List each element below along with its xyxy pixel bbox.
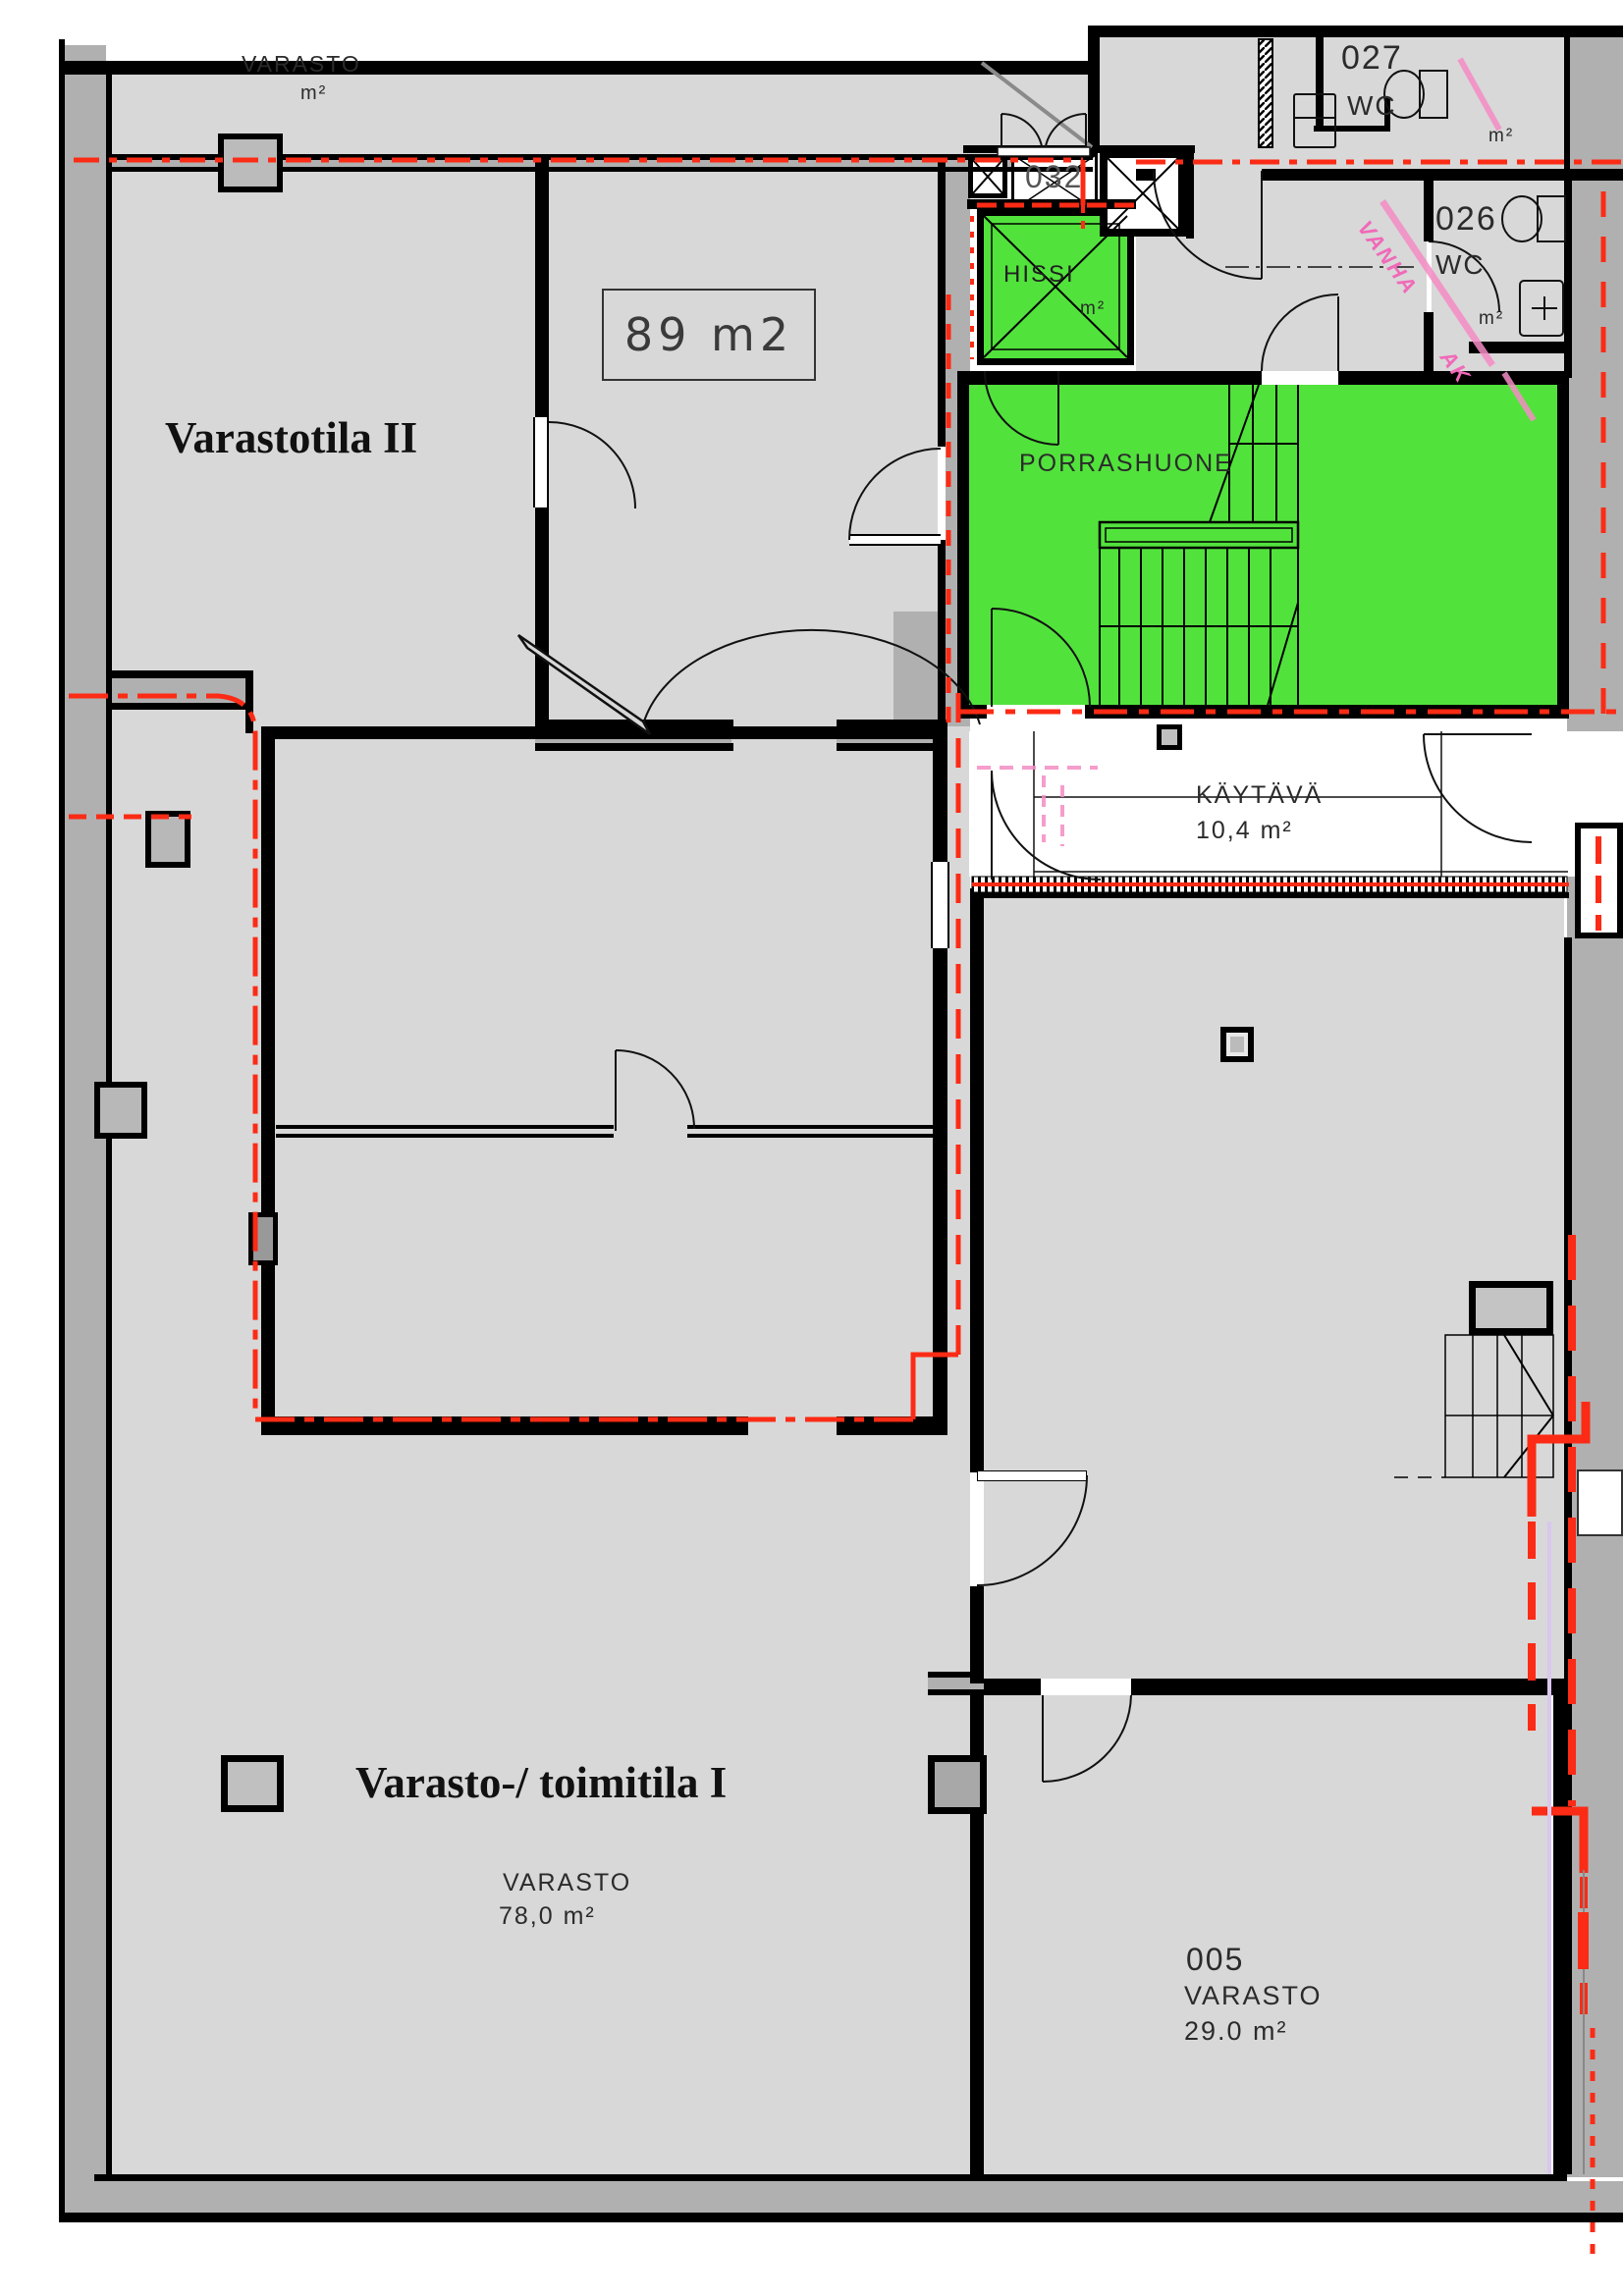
- wall: [1553, 1695, 1564, 2174]
- floor-plan-page: { "rooms": { "varasto_upper": {"name": "…: [0, 0, 1623, 2296]
- wall: [1314, 126, 1390, 132]
- wall: [957, 378, 969, 712]
- wall: [1186, 150, 1194, 239]
- wc-026-type: WC: [1435, 249, 1486, 281]
- wall: [1564, 37, 1570, 182]
- wall: [276, 1125, 614, 1129]
- wall: [276, 1134, 614, 1138]
- wc-026-number: 026: [1435, 200, 1497, 239]
- wall: [106, 703, 253, 710]
- wall: [970, 892, 1569, 898]
- varasto-78-label: VARASTO: [503, 1869, 631, 1897]
- wall: [1136, 169, 1156, 181]
- room-005-label: VARASTO: [1184, 1981, 1323, 2011]
- shaft-elevator: [1100, 150, 1186, 237]
- wall: [535, 154, 549, 417]
- room-89-label-box: 89 m2: [602, 289, 816, 381]
- column: [1157, 724, 1182, 750]
- note-box: [1577, 1469, 1623, 1536]
- door-leaf: [533, 417, 549, 507]
- varasto-toimitila-floor: [112, 710, 970, 2174]
- wall: [535, 507, 549, 726]
- door-gap: [1262, 371, 1338, 385]
- wall: [1469, 342, 1567, 353]
- wall: [261, 726, 275, 1420]
- wall: [1088, 75, 1100, 149]
- wall: [245, 670, 253, 733]
- wall: [970, 888, 984, 1472]
- wall: [938, 154, 946, 447]
- wall: [59, 2213, 1623, 2222]
- wall: [984, 1679, 1041, 1695]
- room-89-label: 89 m2: [624, 308, 793, 361]
- wall: [687, 1125, 935, 1129]
- wall: [837, 720, 947, 726]
- door-leaf: [977, 1470, 1087, 1481]
- wall: [1131, 1679, 1566, 1695]
- wall: [1088, 26, 1100, 75]
- wall: [261, 1416, 947, 1435]
- wall: [1557, 378, 1569, 719]
- wall: [94, 2174, 1567, 2181]
- wall: [1424, 312, 1434, 371]
- wall: [1316, 37, 1324, 128]
- wall: [933, 948, 947, 1420]
- varasto-toimitila-title: Varasto-/ toimitila I: [355, 1757, 727, 1808]
- shaft-duct: [1575, 823, 1623, 938]
- wall: [1424, 181, 1434, 241]
- wall: [535, 720, 733, 726]
- wall: [1564, 937, 1572, 2174]
- wall: [928, 1689, 984, 1695]
- kaytava-label: KÄYTÄVÄ: [1196, 781, 1323, 810]
- column: [248, 1212, 278, 1265]
- wall: [938, 540, 946, 726]
- room-005-number: 005: [1186, 1942, 1244, 1978]
- column: [145, 811, 190, 868]
- upper-varasto-area: m²: [300, 82, 327, 105]
- wall: [970, 1586, 984, 1683]
- shaft-small: [968, 155, 1007, 198]
- room-89-floor: [549, 154, 938, 720]
- porrashuone-label: PORRASHUONE: [1019, 450, 1233, 478]
- column: [94, 1082, 147, 1139]
- fire-glazing-strip: [972, 877, 1567, 892]
- wall-stub-fill: [106, 678, 251, 703]
- wall: [687, 1134, 935, 1138]
- door-gap: [970, 1472, 984, 1586]
- varastotila-2-title: Varastotila II: [165, 412, 417, 463]
- wc-027-type: WC: [1347, 90, 1397, 122]
- column: [218, 133, 283, 192]
- column: [928, 1755, 987, 1814]
- room-005-floor: [984, 1695, 1551, 2174]
- wall-band-bottom: [65, 2181, 1623, 2213]
- room-005-area: 29.0 m²: [1184, 2016, 1288, 2047]
- upper-varasto-label: VARASTO: [242, 51, 361, 78]
- hissi-label: HISSI: [1003, 261, 1075, 289]
- door-gap: [931, 862, 949, 948]
- porrashuone-room: [969, 383, 1565, 707]
- door-leaf: [849, 534, 941, 546]
- wall: [928, 1672, 984, 1678]
- wc-027-number: 027: [1341, 39, 1403, 78]
- wall: [106, 670, 253, 678]
- varasto-78-area: 78,0 m²: [499, 1902, 596, 1931]
- wall: [59, 39, 65, 2220]
- door-gap: [987, 705, 1085, 719]
- stair-landing: [1469, 1281, 1553, 1335]
- wall-band-right: [1567, 37, 1623, 2177]
- kaytava-area: 10,4 m²: [1196, 817, 1293, 845]
- room-032-label: 032: [1025, 159, 1083, 195]
- wall: [963, 145, 1195, 153]
- wc-027-area: m²: [1488, 126, 1514, 147]
- hissi-area: m²: [1080, 298, 1106, 320]
- column: [221, 1755, 284, 1812]
- wall: [59, 61, 1093, 75]
- wall: [967, 199, 1136, 209]
- wc-026-area: m²: [1479, 308, 1504, 330]
- wall: [535, 743, 733, 751]
- door-gap: [1041, 1679, 1131, 1695]
- wall: [1093, 26, 1623, 37]
- door-gap: [748, 1416, 837, 1435]
- wall: [261, 726, 947, 739]
- wall: [1564, 181, 1572, 378]
- wall: [837, 743, 947, 751]
- column-marker-core: [1230, 1037, 1244, 1052]
